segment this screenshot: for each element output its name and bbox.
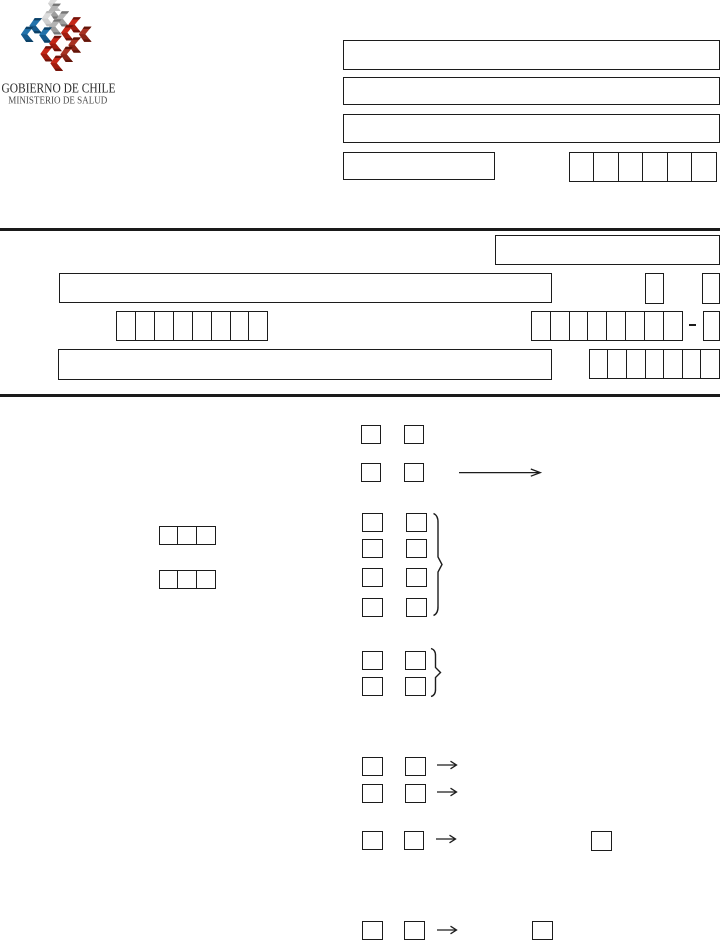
svg-text:GOBIERNO DE CHILE: GOBIERNO DE CHILE [2,81,116,96]
svg-text:MINISTERIO DE SALUD: MINISTERIO DE SALUD [8,96,107,107]
